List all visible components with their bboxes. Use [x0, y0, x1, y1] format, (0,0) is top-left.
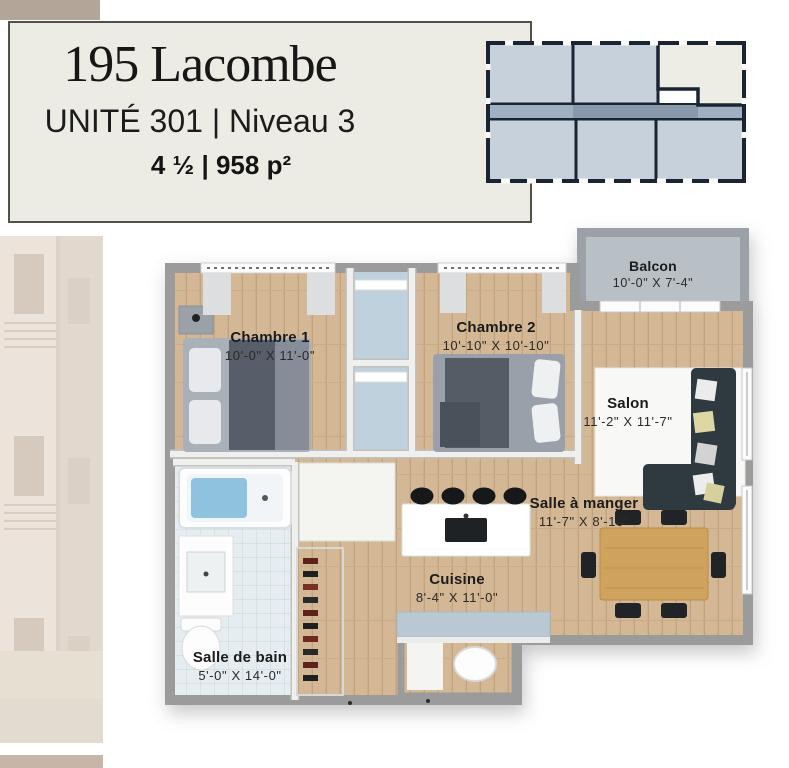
key-plan-unit — [573, 43, 658, 104]
balcony-door — [600, 301, 720, 312]
wardrobe — [297, 548, 343, 695]
key-plan-corridor-dark — [573, 105, 698, 118]
key-plan-unit-highlighted — [658, 43, 744, 105]
island-sink — [445, 518, 487, 542]
title-box: 195 Lacombe UNITÉ 301 | Niveau 3 4 ½ | 9… — [8, 21, 532, 223]
unit-subtitle: UNITÉ 301 | Niveau 3 — [10, 103, 390, 140]
key-plan-unit — [656, 119, 744, 181]
room-label-salle-a-manger: Salle à manger 11'-7" X 8'-10" — [530, 494, 639, 530]
key-plan-unit — [488, 43, 573, 104]
building-key-plan — [483, 36, 749, 188]
kitchen-counter — [397, 612, 550, 637]
tan-accent-top — [0, 0, 100, 20]
dining-table — [600, 528, 708, 600]
room-label-chambre-1: Chambre 1 10'-0" X 11'-0" — [225, 328, 315, 364]
flyer-page: 195 Lacombe UNITÉ 301 | Niveau 3 4 ½ | 9… — [0, 0, 789, 768]
unit-details: 4 ½ | 958 p² — [52, 150, 390, 181]
bed-chambre-2 — [433, 354, 565, 452]
storage-closet — [297, 463, 395, 541]
water-heater — [454, 647, 496, 681]
room-label-salon: Salon 11'-2" X 11'-7" — [583, 394, 672, 430]
room-label-salle-de-bain: Salle de bain 5'-0" X 14'-0" — [193, 648, 287, 684]
room-label-cuisine: Cuisine 8'-4" X 11'-0" — [416, 570, 498, 606]
building-photo — [0, 236, 103, 743]
bathtub — [179, 468, 291, 528]
key-plan-unit — [488, 119, 576, 181]
key-plan-unit — [576, 119, 656, 181]
room-label-balcon: Balcon 10'-0" X 7'-4" — [613, 257, 693, 291]
vanity-sink — [179, 536, 233, 616]
room-label-chambre-2: Chambre 2 10'-10" X 10'-10" — [443, 318, 550, 354]
tan-accent-bottom — [0, 755, 103, 768]
page-title: 195 Lacombe — [10, 35, 390, 95]
